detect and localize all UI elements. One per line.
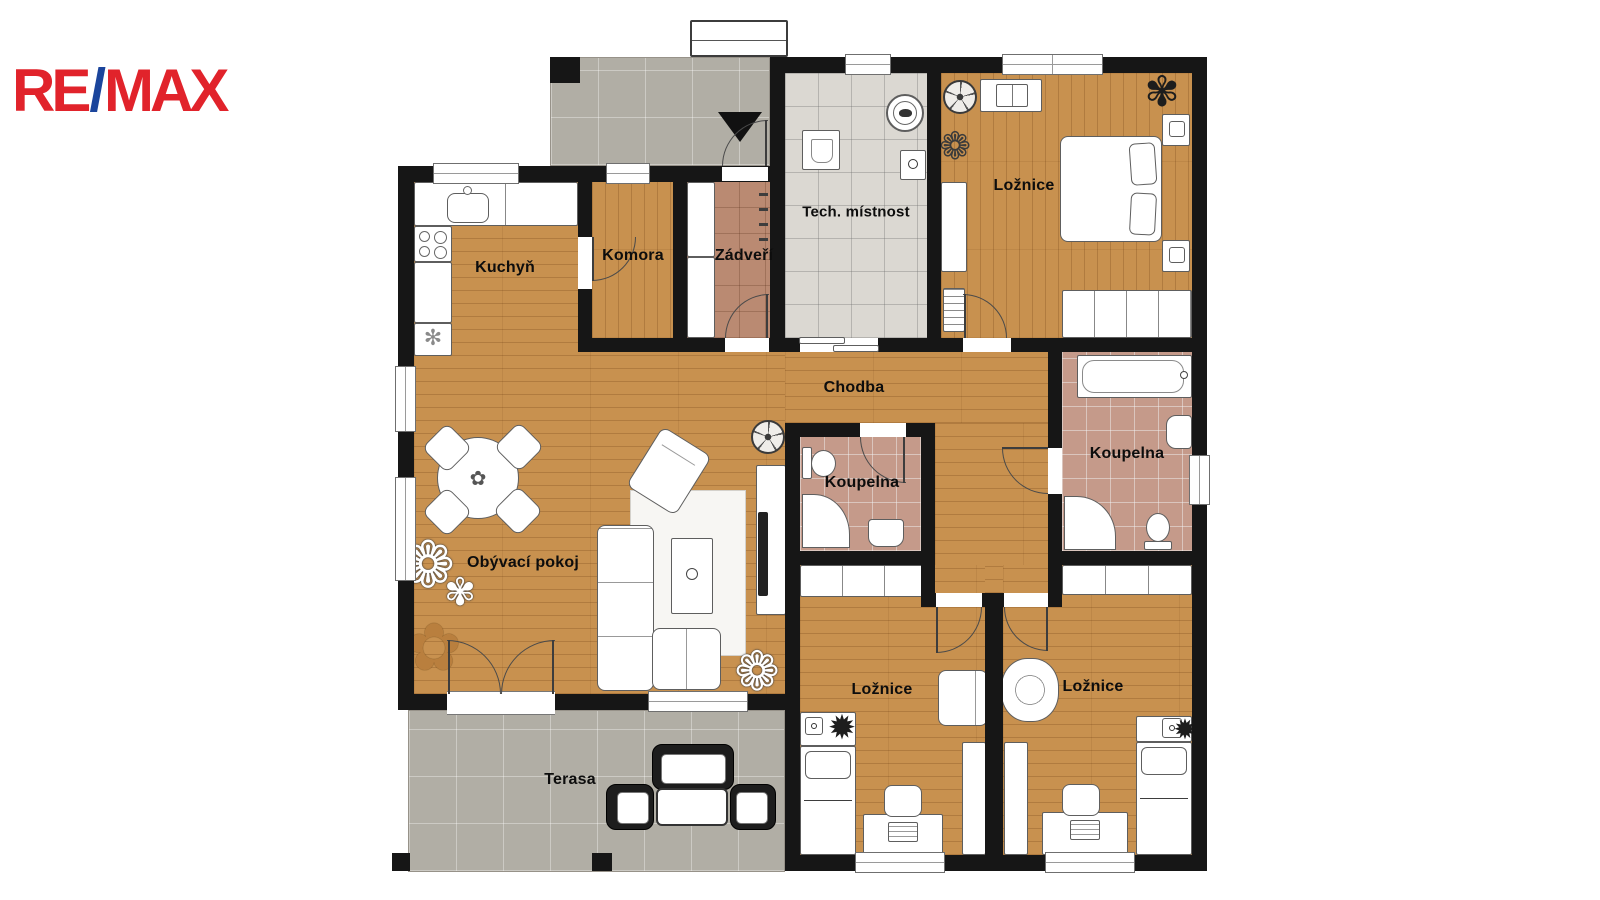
bathtub bbox=[1077, 355, 1192, 398]
kitchen-cabinet bbox=[414, 262, 452, 323]
wardrobe bbox=[800, 565, 928, 597]
wall bbox=[673, 181, 687, 352]
door-leaf bbox=[936, 607, 938, 653]
wall bbox=[785, 551, 935, 565]
boiler-dial bbox=[908, 159, 918, 169]
wall bbox=[985, 593, 1003, 871]
desk-chair bbox=[884, 785, 922, 817]
logo-slash-icon: / bbox=[87, 57, 104, 124]
outdoor-chair bbox=[730, 784, 776, 830]
ceiling-fan-icon bbox=[943, 80, 977, 114]
door-opening bbox=[936, 593, 982, 607]
window bbox=[1189, 455, 1210, 505]
wall bbox=[921, 423, 935, 607]
door-opening bbox=[1004, 593, 1048, 607]
wall bbox=[398, 166, 414, 710]
window bbox=[1045, 852, 1135, 873]
porch-pillar bbox=[550, 57, 580, 83]
kitchen-sink bbox=[447, 193, 489, 223]
terrace-area bbox=[408, 710, 785, 872]
floor-plan: RE/MAX ✻ bbox=[0, 0, 1600, 900]
room-label-tech: Tech. místnost bbox=[802, 204, 910, 221]
door-leaf bbox=[552, 640, 554, 694]
kitchen-faucet bbox=[463, 186, 472, 195]
window bbox=[606, 163, 650, 184]
round-armchair bbox=[1001, 658, 1059, 722]
snowflake-icon: ✻ bbox=[424, 326, 442, 351]
desk-chair bbox=[1062, 784, 1100, 816]
room-label-terasa: Terasa bbox=[544, 771, 596, 789]
window bbox=[648, 691, 748, 712]
wall bbox=[927, 73, 941, 338]
room-label-zadveri: Zádveří bbox=[715, 247, 773, 265]
burner bbox=[434, 231, 447, 244]
plant-icon: ✾ bbox=[444, 573, 476, 611]
room-label-koupelna-right: Koupelna bbox=[1090, 445, 1165, 463]
toilet-bowl bbox=[811, 450, 836, 477]
tub-inner bbox=[1082, 360, 1184, 393]
wall bbox=[785, 855, 1207, 871]
stove bbox=[414, 226, 452, 262]
plant-icon: ✾ bbox=[1144, 71, 1179, 113]
room-label-kuchyn: Kuchyň bbox=[475, 259, 535, 277]
logo-max: MAX bbox=[104, 57, 225, 124]
door-leaf bbox=[592, 237, 594, 281]
wall bbox=[770, 57, 1207, 73]
window bbox=[1002, 54, 1103, 75]
washing-machine bbox=[886, 94, 924, 132]
coat-hook bbox=[759, 193, 768, 196]
wardrobe bbox=[1004, 742, 1028, 855]
pillow bbox=[1129, 142, 1158, 186]
outdoor-table bbox=[656, 788, 728, 826]
cushion bbox=[617, 792, 649, 824]
outdoor-sofa bbox=[652, 744, 734, 790]
plant-icon: ✿ bbox=[470, 468, 487, 488]
tub-faucet bbox=[1180, 371, 1188, 379]
wall bbox=[770, 57, 785, 352]
utility-sink bbox=[802, 130, 840, 170]
lamp bbox=[1169, 121, 1185, 137]
sink-basin bbox=[811, 139, 833, 163]
window bbox=[845, 54, 891, 75]
coffee-table-decor bbox=[686, 568, 698, 580]
cushion bbox=[661, 754, 726, 784]
armchair bbox=[938, 670, 988, 726]
bathroom-sink bbox=[868, 519, 904, 547]
nightstand bbox=[1162, 240, 1190, 272]
tv bbox=[758, 512, 768, 596]
burner bbox=[419, 246, 430, 257]
room-label-komora: Komora bbox=[602, 247, 664, 265]
kitchen-counter bbox=[414, 182, 578, 226]
coat-hook bbox=[759, 238, 768, 241]
washer-laundry bbox=[899, 109, 912, 117]
boiler bbox=[900, 150, 926, 180]
sofa-section bbox=[597, 525, 654, 691]
door-opening bbox=[447, 691, 555, 715]
nightstand bbox=[1162, 114, 1190, 146]
pillow bbox=[805, 751, 851, 779]
room-label-koupelna-left: Koupelna bbox=[825, 474, 900, 492]
terrace-pillar-mid bbox=[592, 853, 612, 871]
door-opening bbox=[725, 338, 769, 352]
wardrobe bbox=[962, 742, 986, 855]
coat-hook bbox=[759, 208, 768, 211]
wardrobe bbox=[1062, 290, 1192, 338]
room-label-obyvaci: Obývací pokoj bbox=[467, 554, 579, 572]
pillow bbox=[1141, 747, 1187, 775]
wall bbox=[1048, 551, 1207, 565]
toilet-bowl bbox=[1146, 513, 1170, 542]
wall bbox=[785, 565, 800, 871]
remax-logo: RE/MAX bbox=[12, 56, 225, 125]
wall bbox=[785, 423, 800, 565]
door-opening bbox=[963, 338, 1011, 352]
bathroom-sink bbox=[1166, 415, 1192, 449]
sofa-section bbox=[652, 628, 721, 690]
door-leaf bbox=[766, 294, 768, 338]
dresser-box bbox=[996, 84, 1028, 107]
fridge: ✻ bbox=[414, 323, 452, 356]
sliding-door-panel bbox=[799, 337, 845, 344]
vanity-shelf bbox=[941, 182, 967, 272]
pillow bbox=[1129, 192, 1157, 235]
laptop bbox=[888, 822, 918, 842]
entry-wardrobe bbox=[687, 182, 715, 257]
terrace-pillar-left bbox=[392, 853, 410, 871]
wardrobe bbox=[1062, 565, 1192, 595]
room-label-chodba: Chodba bbox=[824, 379, 885, 397]
laptop bbox=[1070, 820, 1100, 840]
door-leaf bbox=[1002, 447, 1048, 449]
wall bbox=[578, 338, 1207, 352]
door-leaf bbox=[765, 120, 767, 166]
door-leaf bbox=[964, 294, 966, 338]
burner bbox=[434, 246, 447, 259]
door-opening bbox=[722, 167, 768, 181]
plant-icon: ✹ bbox=[828, 711, 857, 745]
entry-wardrobe bbox=[687, 257, 715, 338]
plant-icon: ❁ bbox=[939, 127, 971, 165]
chimney bbox=[690, 20, 788, 57]
toilet bbox=[1144, 541, 1172, 550]
outdoor-chair bbox=[606, 784, 654, 830]
room-label-loznice-bl: Ložnice bbox=[852, 681, 913, 699]
sliding-door-panel bbox=[833, 345, 879, 352]
door-opening bbox=[578, 237, 592, 289]
logo-re: RE bbox=[12, 57, 87, 124]
window bbox=[395, 366, 416, 432]
door-leaf bbox=[448, 640, 450, 694]
door-leaf bbox=[1046, 607, 1048, 651]
door-opening bbox=[860, 423, 906, 437]
blanket-fold bbox=[804, 800, 852, 801]
window bbox=[395, 477, 416, 581]
lamp bbox=[805, 717, 823, 735]
ceiling-fan-icon bbox=[751, 420, 785, 454]
room-label-loznice-top: Ložnice bbox=[994, 177, 1055, 195]
door-leaf bbox=[903, 437, 905, 483]
radiator bbox=[943, 288, 965, 332]
door-opening bbox=[1048, 448, 1062, 494]
burner bbox=[419, 231, 430, 242]
window bbox=[433, 163, 519, 184]
coat-hook bbox=[759, 223, 768, 226]
room-label-loznice-br: Ložnice bbox=[1063, 678, 1124, 696]
blanket-fold bbox=[1140, 798, 1188, 799]
lamp-dot bbox=[811, 723, 817, 729]
cushion bbox=[736, 792, 768, 824]
window bbox=[855, 852, 945, 873]
lamp bbox=[1169, 247, 1185, 263]
